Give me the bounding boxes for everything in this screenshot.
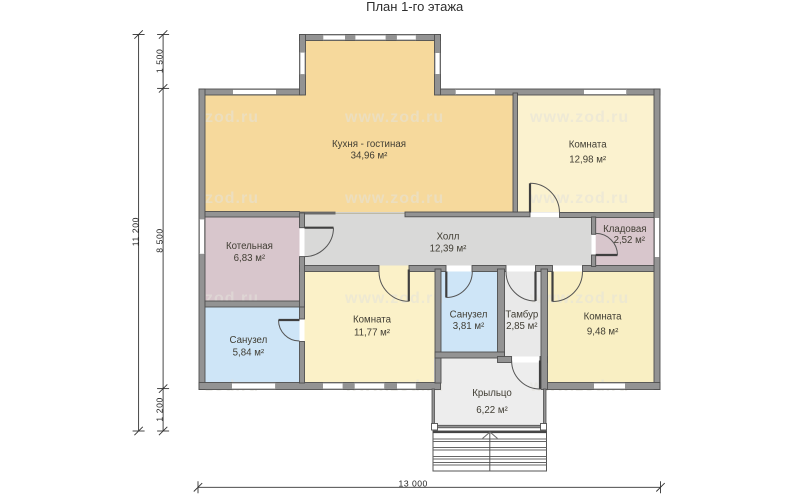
svg-text:2,52 м²: 2,52 м²: [614, 235, 646, 246]
svg-text:zod.ru: zod.ru: [205, 109, 259, 126]
svg-text:Комната: Комната: [353, 314, 392, 325]
svg-text:Кладовая: Кладовая: [603, 224, 646, 235]
svg-text:3,81 м²: 3,81 м²: [453, 321, 485, 332]
svg-text:5,84 м²: 5,84 м²: [233, 348, 265, 359]
svg-text:11,77 м²: 11,77 м²: [354, 328, 391, 339]
svg-text:Котельная: Котельная: [226, 241, 273, 252]
svg-text:www.zod.ru: www.zod.ru: [529, 190, 629, 207]
svg-text:6,22 м²: 6,22 м²: [476, 405, 508, 416]
svg-text:2,85 м²: 2,85 м²: [506, 321, 538, 332]
svg-text:13 000: 13 000: [399, 479, 428, 489]
svg-text:9,48 м²: 9,48 м²: [587, 326, 619, 337]
svg-text:www.zod.ru: www.zod.ru: [344, 109, 444, 126]
svg-text:34,96 м²: 34,96 м²: [351, 150, 389, 161]
svg-text:www.zod.ru: www.zod.ru: [344, 190, 444, 207]
svg-text:1 500: 1 500: [154, 49, 164, 74]
svg-text:План 1-го этажа: План 1-го этажа: [366, 0, 464, 14]
svg-text:zod.ru: zod.ru: [205, 190, 259, 207]
svg-text:11 200: 11 200: [130, 217, 140, 246]
svg-text:Комната: Комната: [569, 139, 608, 150]
svg-text:Холл: Холл: [437, 231, 460, 242]
svg-text:6,83 м²: 6,83 м²: [234, 253, 266, 264]
svg-text:Комната: Комната: [584, 312, 623, 323]
svg-text:Тамбур: Тамбур: [505, 310, 538, 321]
svg-text:12,98 м²: 12,98 м²: [569, 155, 607, 166]
svg-text:1 200: 1 200: [154, 397, 164, 422]
svg-text:www.zod.ru: www.zod.ru: [529, 109, 629, 126]
svg-text:Санузел: Санузел: [450, 310, 488, 321]
svg-text:Кухня - гостиная: Кухня - гостиная: [332, 139, 406, 150]
svg-text:www.zod.ru: www.zod.ru: [344, 290, 444, 307]
svg-text:8 500: 8 500: [155, 228, 165, 253]
svg-text:Санузел: Санузел: [230, 335, 268, 346]
svg-text:12,39 м²: 12,39 м²: [430, 243, 468, 254]
svg-text:Крыльцо: Крыльцо: [472, 388, 512, 399]
